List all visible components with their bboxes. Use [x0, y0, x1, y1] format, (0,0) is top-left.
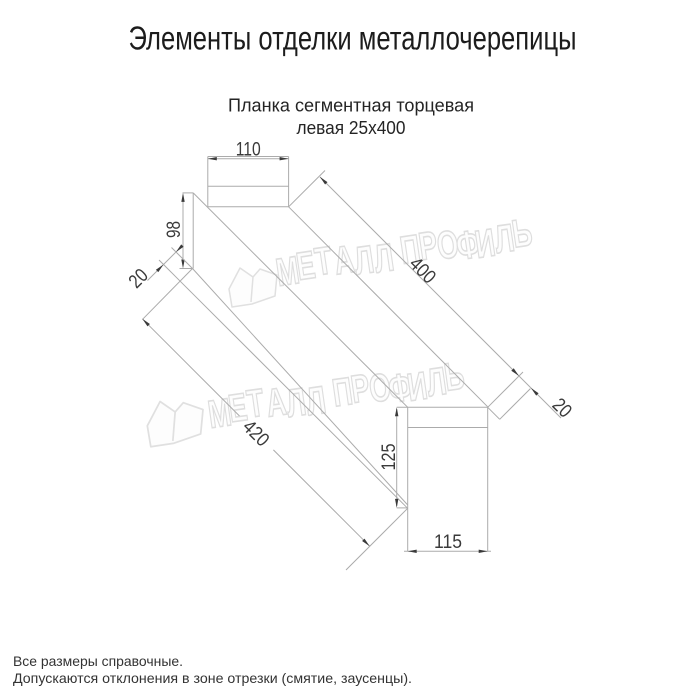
svg-text:115: 115 [434, 531, 462, 553]
svg-text:Допускаются отклонения в зоне: Допускаются отклонения в зоне отрезки (с… [13, 670, 412, 686]
svg-text:Планка сегментная торцевая: Планка сегментная торцевая [228, 95, 474, 115]
svg-text:левая 25х400: левая 25х400 [297, 118, 406, 138]
svg-text:125: 125 [378, 443, 400, 470]
svg-text:Элементы отделки металлочерепи: Элементы отделки металлочерепицы [129, 19, 577, 56]
svg-text:Все размеры справочные.: Все размеры справочные. [13, 653, 183, 669]
svg-text:110: 110 [236, 138, 261, 160]
svg-text:98: 98 [163, 221, 185, 238]
